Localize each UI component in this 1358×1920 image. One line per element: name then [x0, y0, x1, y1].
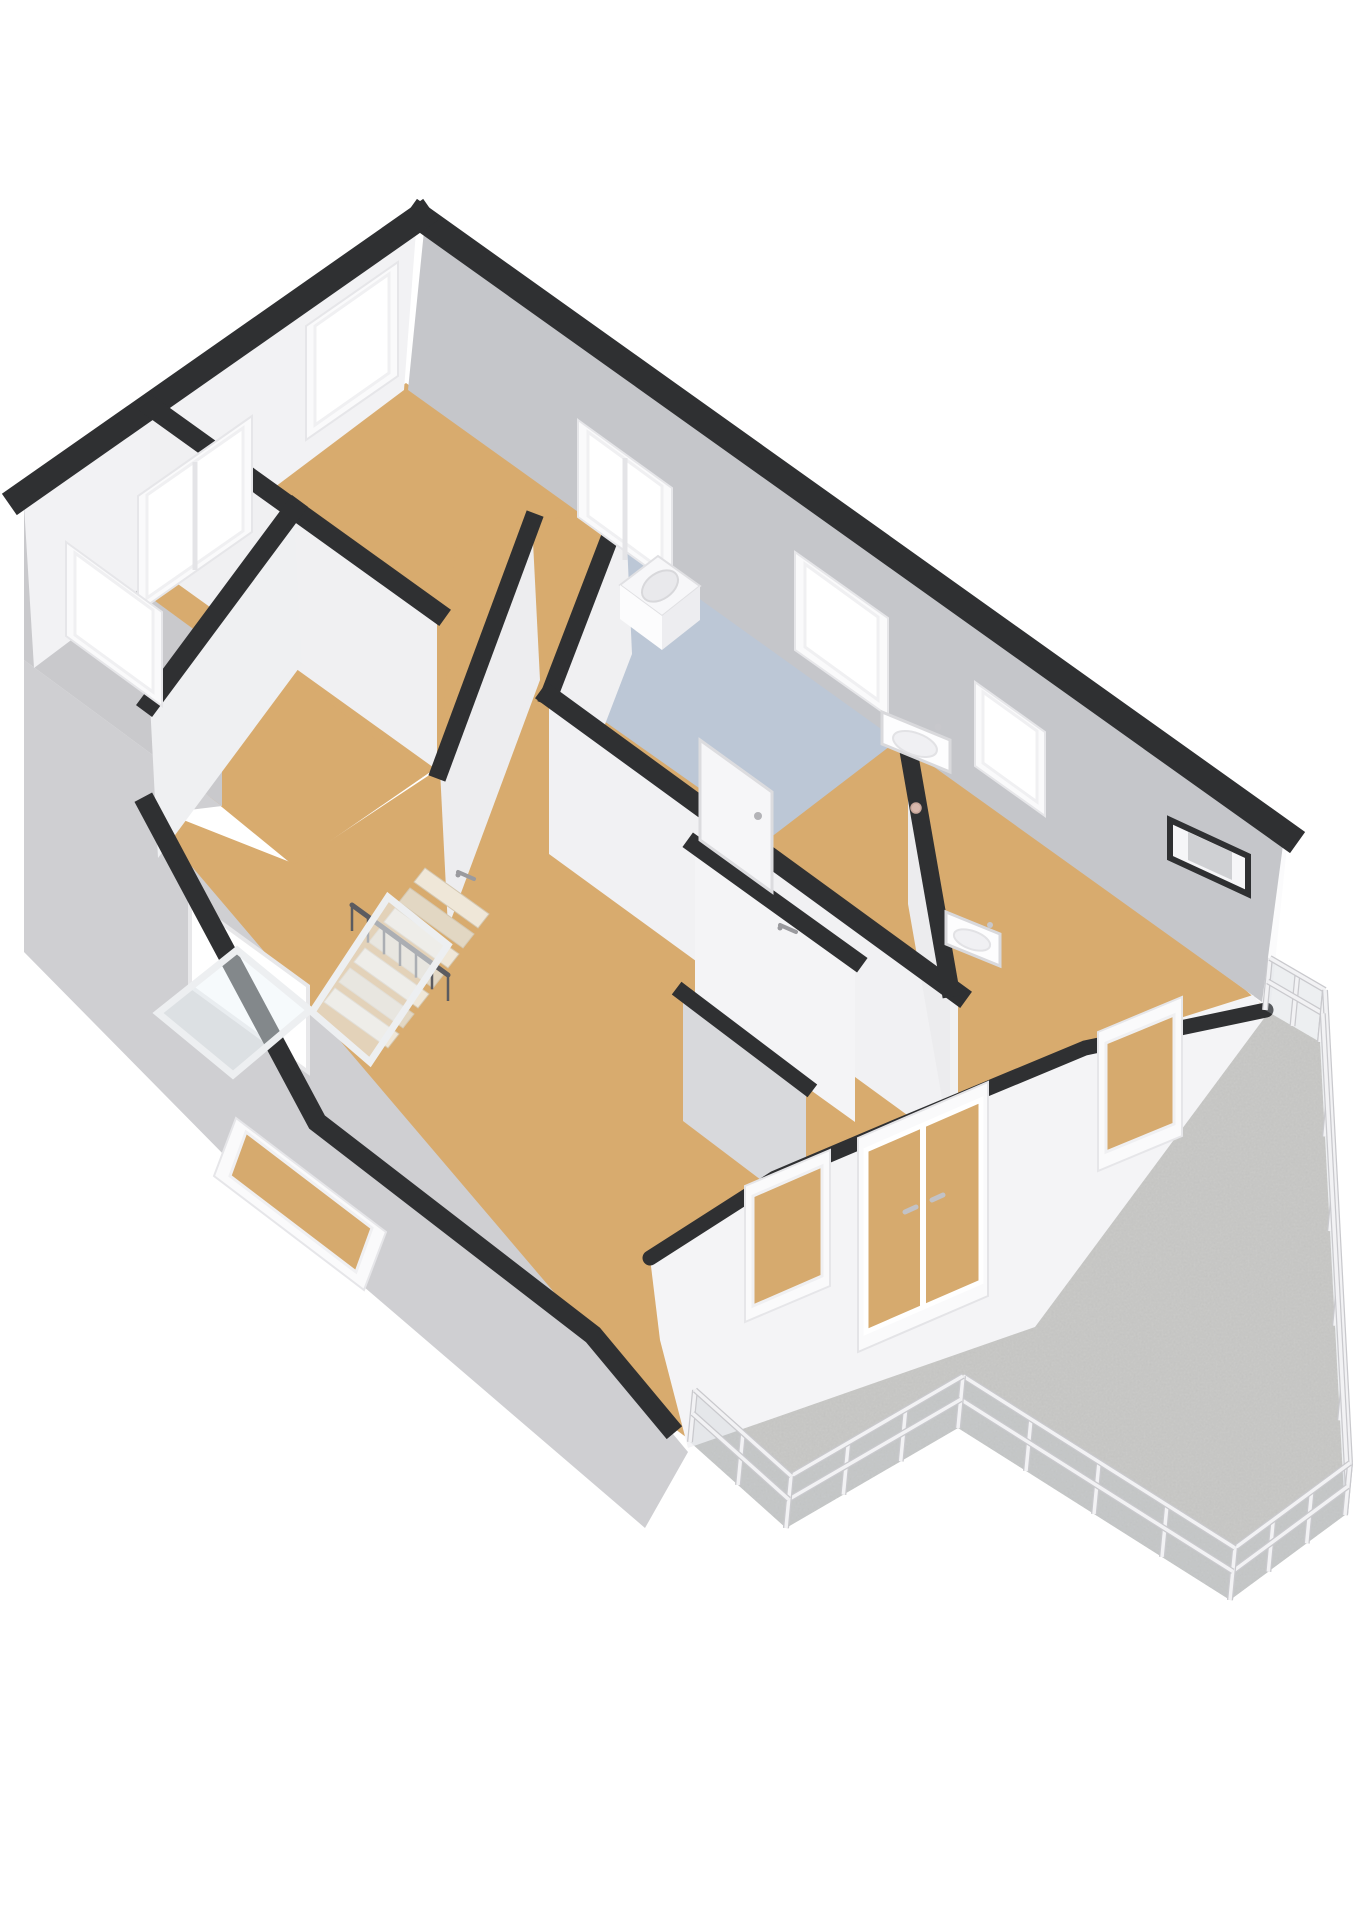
bathroom-door-handle [754, 812, 762, 820]
floorplan-canvas [0, 0, 1358, 1920]
floorplan-3d-render [0, 0, 1358, 1920]
washbasin-faucet [987, 922, 993, 928]
door-handle-knob-1 [778, 926, 783, 931]
door-handle-knob-0 [456, 873, 461, 878]
washbasin-faucet [935, 724, 942, 731]
floor-drain [911, 803, 921, 813]
